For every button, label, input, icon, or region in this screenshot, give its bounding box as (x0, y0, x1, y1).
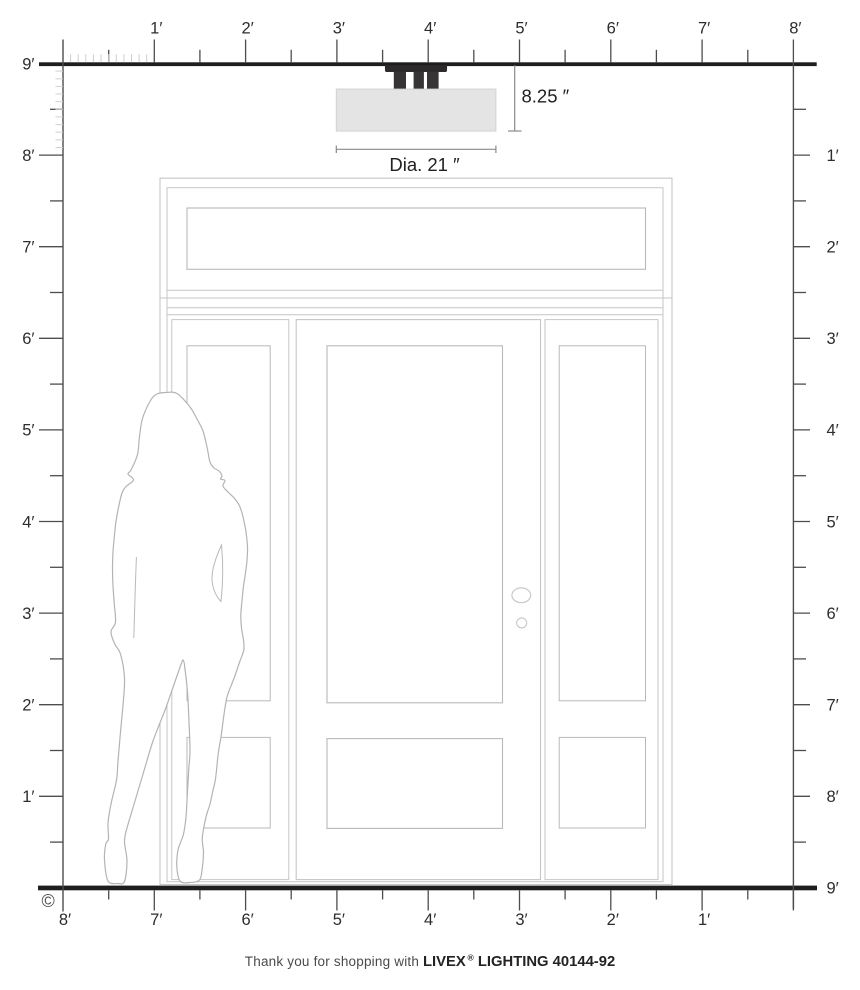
svg-text:4′: 4′ (424, 911, 436, 929)
svg-text:5′: 5′ (515, 20, 527, 38)
svg-text:9′: 9′ (827, 880, 839, 898)
svg-text:8.25 ″: 8.25 ″ (522, 86, 570, 107)
svg-text:7′: 7′ (22, 239, 34, 257)
svg-text:Dia. 21 ″: Dia. 21 ″ (389, 154, 460, 175)
svg-text:9′: 9′ (22, 55, 34, 73)
svg-text:1′: 1′ (22, 788, 34, 806)
svg-text:8′: 8′ (789, 20, 801, 38)
svg-text:6′: 6′ (607, 20, 619, 38)
svg-text:3′: 3′ (333, 20, 345, 38)
svg-text:8′: 8′ (22, 147, 34, 165)
svg-text:7′: 7′ (698, 20, 710, 38)
svg-text:7′: 7′ (827, 697, 839, 715)
svg-text:6′: 6′ (22, 330, 34, 348)
svg-text:1′: 1′ (698, 911, 710, 929)
svg-text:8′: 8′ (827, 788, 839, 806)
svg-text:4′: 4′ (827, 422, 839, 440)
svg-text:5′: 5′ (22, 422, 34, 440)
svg-text:5′: 5′ (827, 513, 839, 531)
svg-text:1′: 1′ (827, 147, 839, 165)
svg-text:1′: 1′ (150, 20, 162, 38)
svg-text:6′: 6′ (827, 605, 839, 623)
svg-text:2′: 2′ (607, 911, 619, 929)
svg-text:3′: 3′ (515, 911, 527, 929)
svg-text:3′: 3′ (827, 330, 839, 348)
svg-text:©: © (42, 891, 55, 911)
svg-text:4′: 4′ (22, 513, 34, 531)
svg-text:7′: 7′ (150, 911, 162, 929)
svg-text:6′: 6′ (241, 911, 253, 929)
svg-text:4′: 4′ (424, 20, 436, 38)
svg-text:5′: 5′ (333, 911, 345, 929)
svg-text:8′: 8′ (59, 911, 71, 929)
svg-text:3′: 3′ (22, 605, 34, 623)
svg-text:Thank you for shopping with LI: Thank you for shopping with LIVEX ® LIGH… (245, 953, 615, 971)
svg-text:2′: 2′ (22, 697, 34, 715)
svg-text:2′: 2′ (241, 20, 253, 38)
svg-text:2′: 2′ (827, 239, 839, 257)
